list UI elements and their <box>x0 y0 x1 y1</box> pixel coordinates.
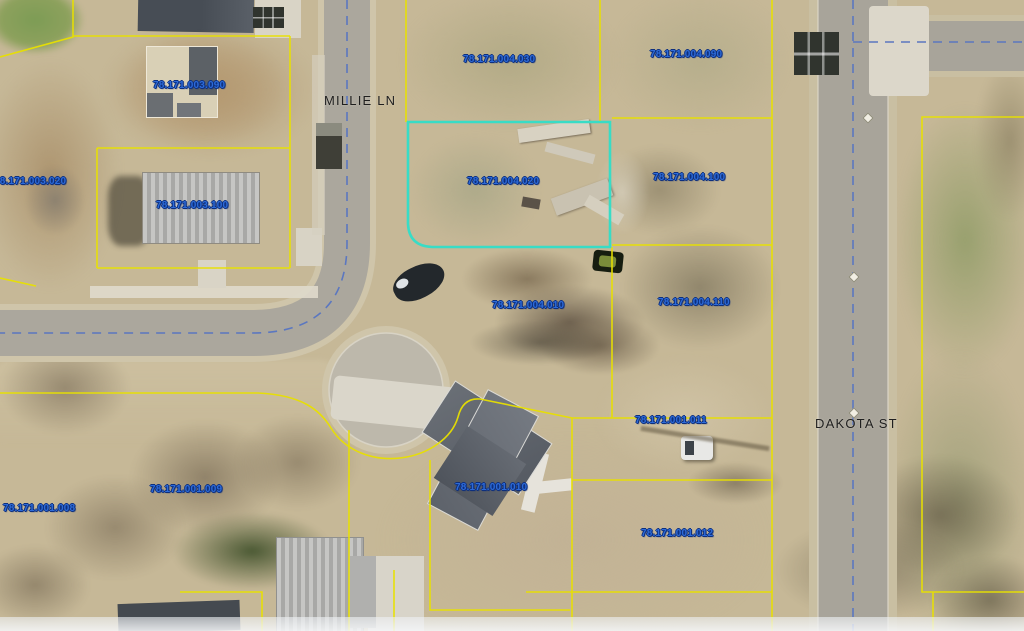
street-label-millie-ln: MILLIE LN <box>324 93 396 108</box>
parcel-label[interactable]: 78.171.004.110 <box>658 297 730 308</box>
parcel-line <box>922 117 1024 631</box>
parcel-label[interactable]: 78.171.001.008 <box>3 503 75 514</box>
parcel-label[interactable]: 78.171.003.090 <box>153 80 225 91</box>
parcel-line <box>180 430 570 631</box>
parcel-label[interactable]: 78.171.003.100 <box>156 200 228 211</box>
parcel-label[interactable]: 78.171.001.011 <box>635 415 707 426</box>
parcel-label-selected[interactable]: 78.171.004.020 <box>467 176 539 187</box>
bottom-fade-bar <box>0 617 1024 631</box>
street-label-dakota-st: DAKOTA ST <box>815 416 898 431</box>
parcel-line <box>0 0 73 57</box>
road-centerlines <box>0 0 1024 631</box>
parcel-label[interactable]: 78.171.001.012 <box>641 528 713 539</box>
parcel-label[interactable]: 78.171.004.030 <box>463 54 535 65</box>
millie-ln-centerline <box>0 0 347 333</box>
parcel-label[interactable]: 78.171.003.020 <box>0 176 66 187</box>
parcel-overlay-layer <box>0 0 1024 631</box>
aerial-map: 78.171.003.090 78.171.003.020 78.171.003… <box>0 0 1024 631</box>
parcel-label[interactable]: 78.171.001.009 <box>150 484 222 495</box>
parcel-label[interactable]: 78.171.004.010 <box>492 300 564 311</box>
parcel-label[interactable]: 78.171.001.010 <box>455 482 527 493</box>
parcel-boundaries <box>0 0 1024 631</box>
parcel-line <box>0 36 290 286</box>
parcel-label[interactable]: 78.171.004.090 <box>650 49 722 60</box>
parcel-line <box>0 393 572 459</box>
parcel-label[interactable]: 78.171.004.100 <box>653 172 725 183</box>
parcel-line <box>526 418 772 631</box>
